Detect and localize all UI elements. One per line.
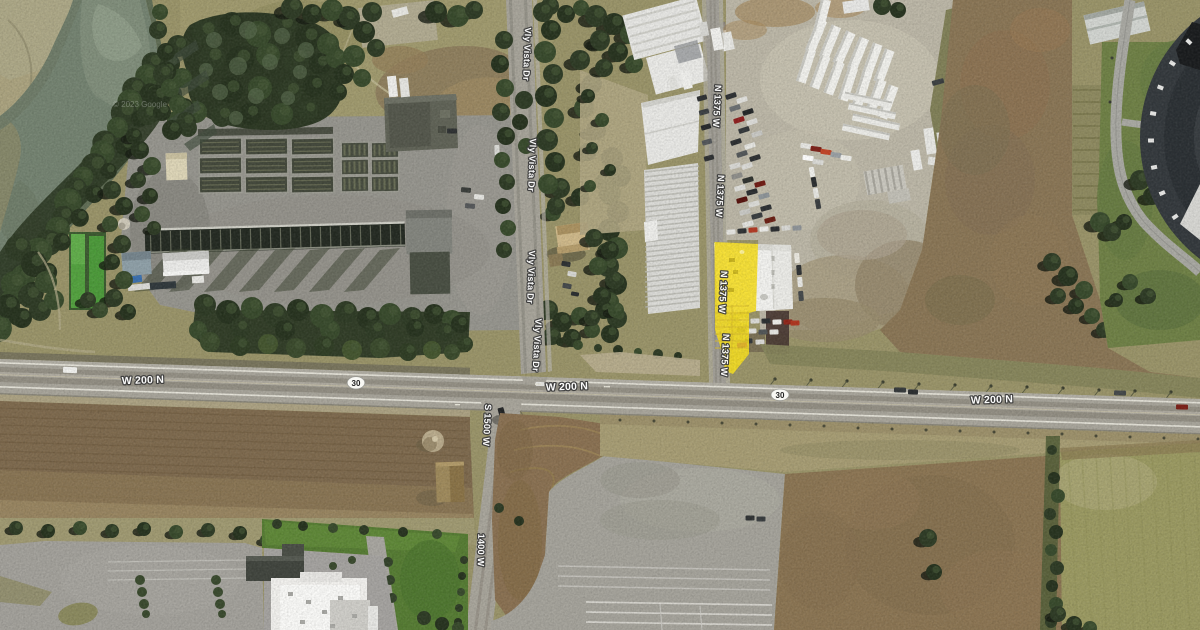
svg-text:1400 W: 1400 W (476, 534, 487, 567)
svg-text:W 200 N: W 200 N (971, 393, 1014, 406)
svg-text:W 200 N: W 200 N (122, 374, 165, 387)
svg-text:30: 30 (776, 391, 785, 400)
svg-text:W 200 N: W 200 N (546, 380, 589, 393)
svg-text:Vly Vista Dr: Vly Vista Dr (521, 27, 533, 81)
svg-text:Vly Vista Dr: Vly Vista Dr (525, 250, 537, 304)
svg-text:30: 30 (352, 379, 361, 388)
svg-text:Vly Vista Dr: Vly Vista Dr (526, 138, 538, 192)
svg-text:© 2023 Google: © 2023 Google (113, 100, 167, 109)
